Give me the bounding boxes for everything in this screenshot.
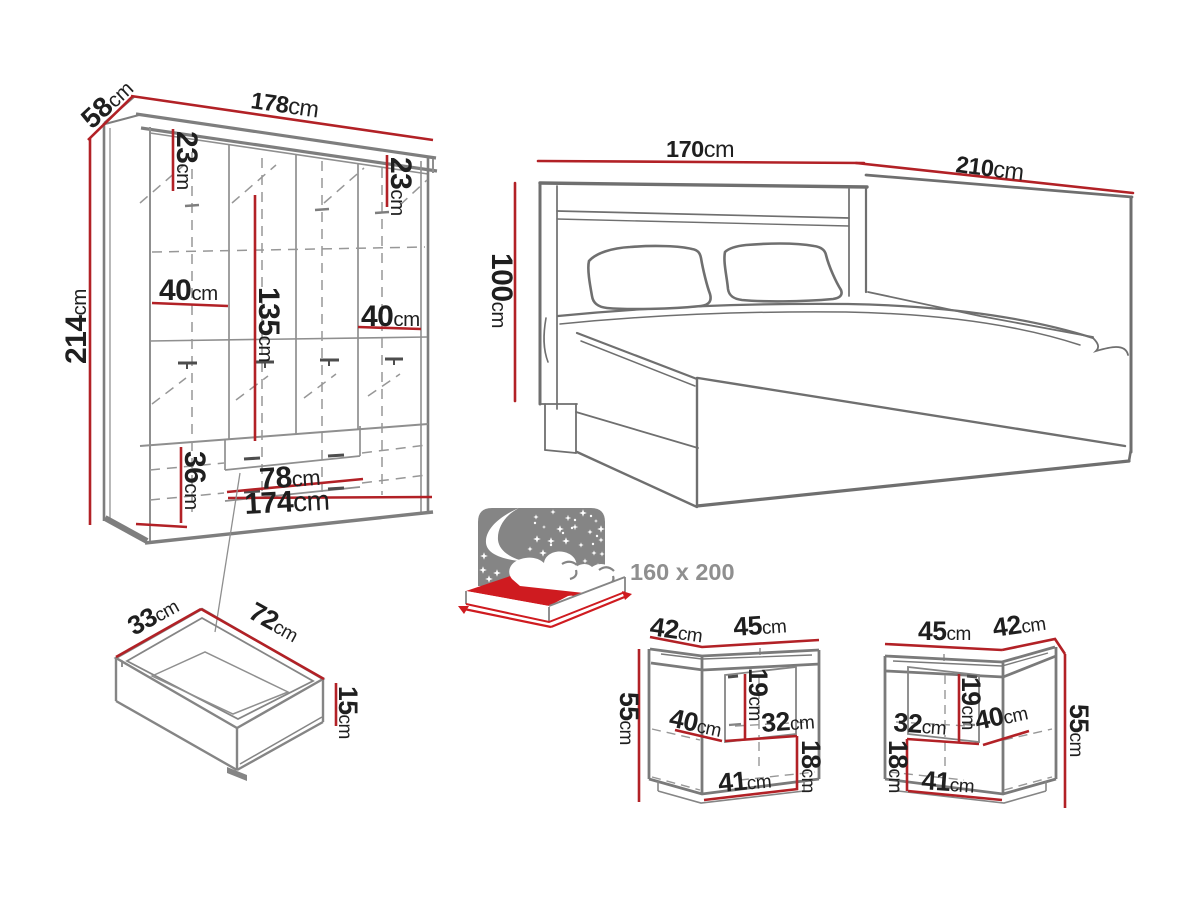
svg-text:174cm: 174cm (244, 484, 331, 521)
svg-text:160 x 200: 160 x 200 (630, 559, 735, 585)
svg-text:170cm: 170cm (666, 136, 734, 162)
